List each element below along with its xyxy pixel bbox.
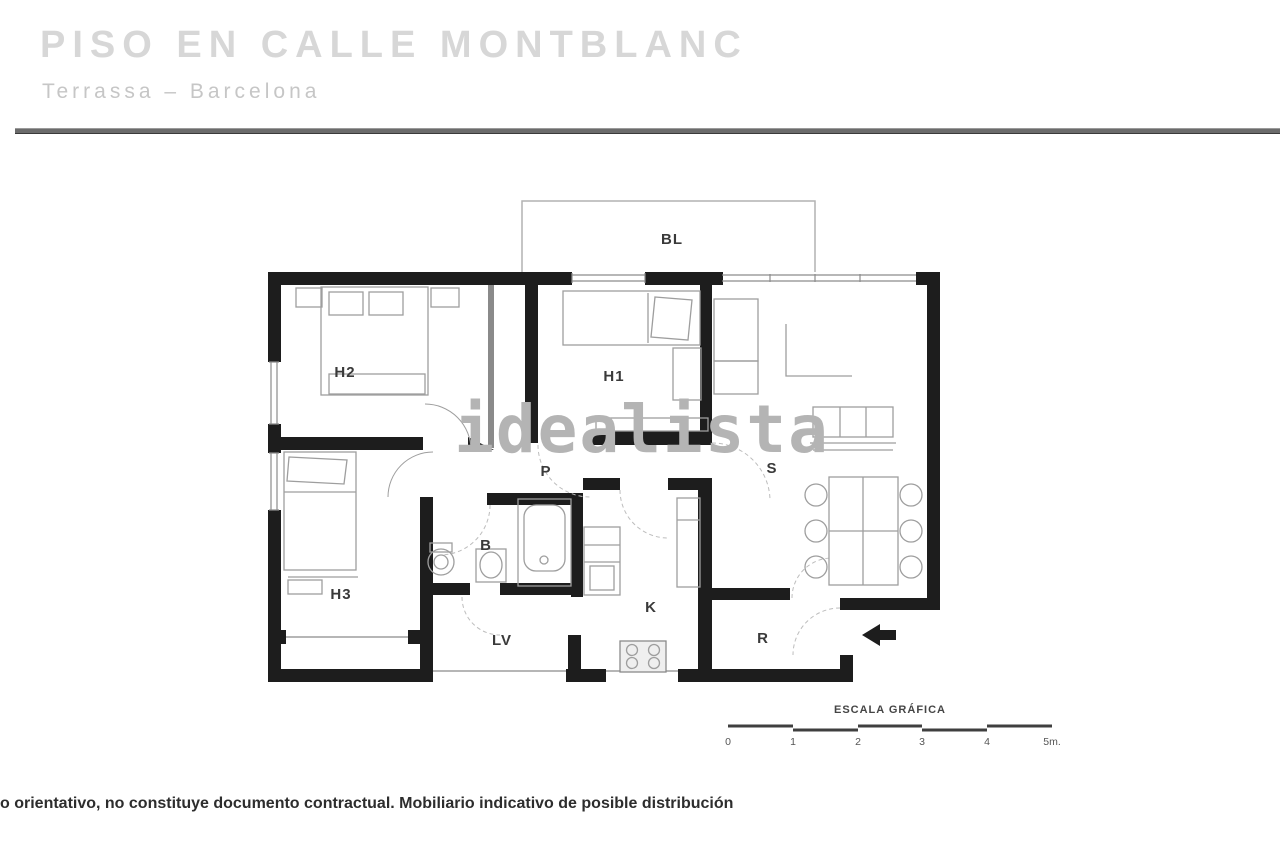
floor-plan: BL: [0, 0, 1280, 853]
interior-walls: [268, 272, 790, 682]
scale-bar: ESCALA GRÁFICA 0 1 2 3 4 5m.: [725, 703, 1061, 748]
chair: [805, 484, 827, 506]
cabinet: [714, 299, 758, 361]
room-label-lv: LV: [492, 632, 512, 649]
scale-tick: 0: [725, 736, 731, 748]
scale-tick: 3: [919, 736, 925, 748]
disclaimer-text: o orientativo, no constituye documento c…: [0, 795, 733, 813]
scale-tick: 1: [790, 736, 796, 748]
toilet-tank: [430, 543, 452, 552]
room-label-h2: H2: [334, 364, 355, 381]
chair: [805, 556, 827, 578]
bathtub: [518, 499, 571, 586]
nightstand: [296, 288, 322, 307]
fridge: [677, 498, 700, 587]
scale-tick: 5m.: [1043, 736, 1061, 748]
entrance-arrow-icon: [862, 624, 896, 646]
scale-tick: 4: [984, 736, 990, 748]
pillow: [287, 457, 347, 484]
nightstand: [431, 288, 459, 307]
chair: [900, 520, 922, 542]
floorplan-page: PISO EN CALLE MONTBLANC Terrassa – Barce…: [0, 0, 1280, 853]
scale-bar-title: ESCALA GRÁFICA: [834, 703, 946, 716]
pillow: [369, 292, 403, 315]
pillow: [651, 297, 692, 340]
h2-furniture: [296, 287, 459, 395]
room-label-r: R: [757, 630, 769, 647]
stove: [620, 641, 666, 672]
chair: [805, 520, 827, 542]
balcony: BL: [522, 201, 815, 272]
pillow: [329, 292, 363, 315]
room-label-h3: H3: [330, 586, 351, 603]
room-label-h1: H1: [603, 368, 624, 385]
chair: [900, 556, 922, 578]
idealista-watermark: idealista: [454, 391, 830, 468]
cabinet: [714, 361, 758, 394]
scale-tick: 2: [855, 736, 861, 748]
bathroom-fixtures: [428, 499, 571, 586]
kitchen-fixtures: [584, 498, 700, 672]
rug-corner: [786, 324, 852, 376]
h3-furniture: [284, 452, 408, 637]
room-label-k: K: [645, 599, 657, 616]
room-label-bl: BL: [661, 231, 683, 248]
chair: [900, 484, 922, 506]
room-label-b: B: [480, 537, 492, 554]
